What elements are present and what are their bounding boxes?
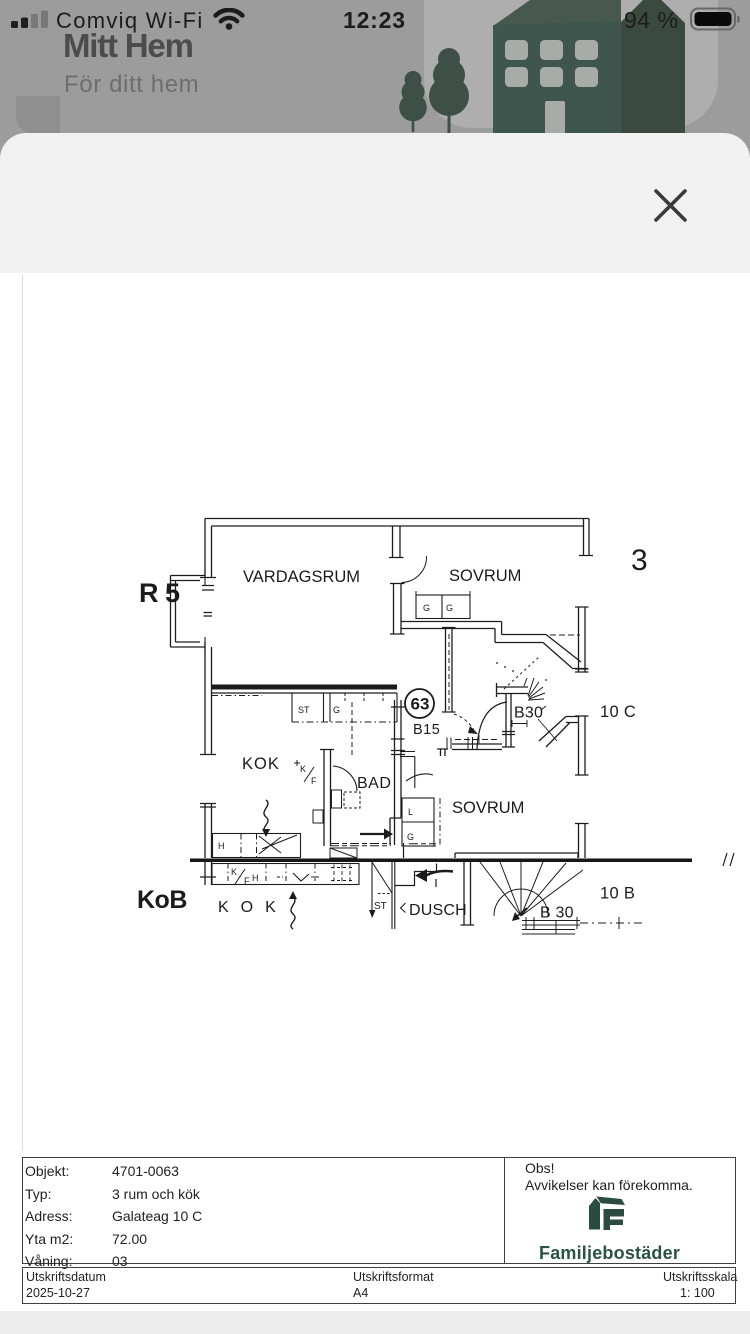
svg-text:K: K — [300, 764, 306, 774]
svg-text:H: H — [252, 873, 259, 883]
svg-text:SOVRUM: SOVRUM — [449, 567, 521, 585]
svg-text:SOVRUM: SOVRUM — [452, 799, 524, 817]
svg-text:B 30: B 30 — [540, 905, 574, 922]
svg-text:VARDAGSRUM: VARDAGSRUM — [243, 568, 360, 586]
svg-text:B15: B15 — [413, 722, 440, 738]
svg-text:G: G — [407, 832, 414, 842]
svg-text:G: G — [333, 705, 340, 715]
svg-text:ST: ST — [374, 901, 387, 912]
svg-text:KoB: KoB — [137, 886, 187, 914]
svg-text:G: G — [446, 603, 453, 613]
svg-text:63: 63 — [411, 695, 430, 714]
svg-text:L: L — [408, 807, 413, 817]
svg-text:R 5: R 5 — [139, 578, 180, 608]
svg-text:KOK: KOK — [242, 755, 280, 773]
svg-text:ST: ST — [298, 705, 310, 715]
svg-text:10 C: 10 C — [600, 703, 636, 721]
svg-text:H: H — [218, 841, 225, 851]
svg-text:F: F — [311, 776, 317, 786]
svg-text:KOK: KOK — [218, 899, 288, 916]
svg-text:K: K — [231, 867, 237, 877]
svg-text:DUSCH: DUSCH — [409, 902, 467, 919]
svg-text:10 B: 10 B — [600, 885, 635, 903]
svg-text:BAD: BAD — [357, 775, 391, 792]
svg-text:3: 3 — [631, 544, 648, 577]
svg-text:G: G — [423, 603, 430, 613]
svg-text:B30: B30 — [514, 705, 543, 722]
svg-text:F: F — [244, 876, 250, 886]
